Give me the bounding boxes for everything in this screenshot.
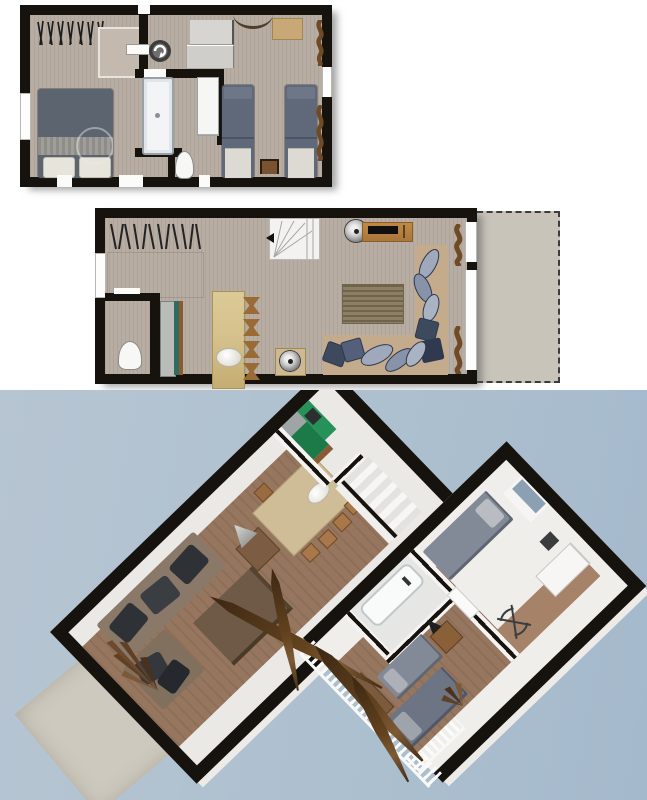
wood-desk xyxy=(272,18,303,40)
dining-table xyxy=(212,291,245,389)
upper-floor-plan xyxy=(20,5,332,187)
sofa-cushion-3d xyxy=(168,543,210,586)
top-wall-slot xyxy=(138,5,150,14)
bottom-wall-slot xyxy=(119,175,143,187)
wc-wall-top xyxy=(105,293,152,301)
bed-foot-linen xyxy=(288,148,314,178)
fan-disc-icon xyxy=(280,351,300,371)
floorplan-canvas xyxy=(0,0,647,800)
bottom-wall-slot xyxy=(199,175,210,187)
decor-ring xyxy=(76,127,113,165)
bed-fold-line xyxy=(285,137,317,139)
sofa-cushion-3d xyxy=(139,574,182,616)
bowl xyxy=(216,348,242,367)
door-symbol xyxy=(126,44,150,55)
wc-wall-right xyxy=(150,293,160,374)
sliding-window xyxy=(465,222,477,262)
sideboard xyxy=(362,222,413,242)
curtain-icon xyxy=(452,326,465,374)
bed-pillow-strip xyxy=(287,87,315,99)
stairs-direction-arrow xyxy=(266,233,274,243)
washing-machine-icon xyxy=(148,39,172,63)
dresser-gray xyxy=(187,45,234,68)
sofa-cushions xyxy=(319,242,451,376)
bed-pillow-strip xyxy=(224,87,252,99)
bed-foot-linen xyxy=(225,148,251,178)
sideboard-handle xyxy=(403,225,405,238)
ground-floor-plan xyxy=(95,208,477,384)
clothes-rail-icon xyxy=(35,18,107,48)
bed-fold-line xyxy=(222,137,254,139)
bathtub-drain xyxy=(155,113,160,118)
wardrobe xyxy=(197,77,219,136)
curtain-icon xyxy=(314,105,326,161)
bed-pillow-3d xyxy=(474,498,505,529)
wc-door-gap xyxy=(114,288,140,294)
curtain-icon xyxy=(452,224,465,266)
nightstand xyxy=(260,159,279,174)
bath-faucet-3d xyxy=(402,576,412,586)
sliding-window xyxy=(465,270,477,370)
toilet xyxy=(118,341,142,370)
coat-rack-icon xyxy=(107,221,203,251)
terrace-2d xyxy=(477,211,560,383)
wall-stub xyxy=(139,14,148,70)
tv-bar xyxy=(368,226,398,234)
window-glass-3d xyxy=(512,479,546,513)
stairs-2d xyxy=(269,218,320,260)
window-right-slot xyxy=(322,67,332,97)
window-left xyxy=(95,253,106,298)
bottom-wall-slot xyxy=(57,175,72,187)
double-bed xyxy=(38,89,113,178)
3d-view xyxy=(0,390,647,800)
dresser-gray xyxy=(190,20,234,45)
window-left xyxy=(20,93,31,140)
bathtub xyxy=(142,77,174,155)
single-bed xyxy=(285,85,317,178)
toilet xyxy=(175,151,194,179)
curtain-icon xyxy=(314,20,326,66)
kitchen-counter-edge xyxy=(179,301,183,375)
single-bed xyxy=(222,85,254,178)
appliance-3d xyxy=(539,531,559,551)
